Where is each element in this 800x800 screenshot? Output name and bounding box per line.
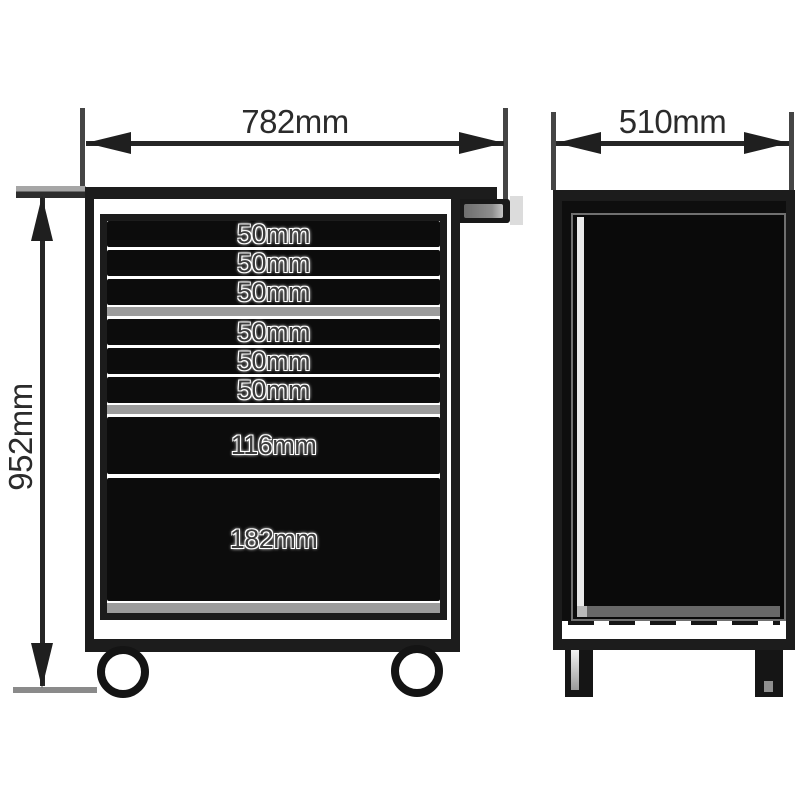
side-handle: [458, 199, 510, 223]
caster-wheel-right: [391, 645, 443, 697]
caster-wheel-left: [97, 646, 149, 698]
drawer-3: 50mm: [107, 279, 440, 305]
dim-arrow-down-icon: [31, 643, 53, 688]
dimension-line-width: [86, 141, 504, 146]
drawer-4-label: 50mm: [237, 319, 310, 346]
side-panel-corner: [577, 606, 587, 617]
drawer-6-label: 50mm: [237, 377, 310, 404]
drawer-rail: [107, 405, 440, 414]
drawer-rail: [107, 307, 440, 316]
side-leg-front: [565, 650, 593, 697]
front-view: 50mm 50mm 50mm 50mm 50mm 50mm 116mm: [85, 187, 460, 652]
side-panel-bottom-shade: [577, 606, 780, 617]
side-base-dashed-line: [568, 621, 780, 625]
dim-arrow-up-icon: [31, 196, 53, 241]
drawing-canvas: 782mm 510mm 952mm 50mm 50mm 50mm 50mm: [0, 0, 800, 800]
drawer-5: 50mm: [107, 348, 440, 374]
dimension-line-height: [40, 198, 45, 686]
drawer-5-label: 50mm: [237, 348, 310, 375]
drawer-8-label: 182mm: [230, 526, 318, 553]
height-dimension-label: 952mm: [2, 383, 40, 491]
drawer-rail: [107, 603, 440, 613]
drawer-1: 50mm: [107, 221, 440, 247]
drawer-4: 50mm: [107, 319, 440, 345]
drawer-2-label: 50mm: [237, 250, 310, 277]
side-handle-grip: [464, 204, 503, 218]
drawer-compartment: 50mm 50mm 50mm 50mm 50mm 50mm 116mm: [100, 214, 447, 620]
handle-highlight: [510, 196, 523, 225]
drawer-7: 116mm: [107, 417, 440, 474]
extension-line-width-left: [80, 108, 85, 190]
drawer-1-label: 50mm: [237, 221, 310, 248]
side-leg-rear: [755, 650, 783, 697]
side-panel: [571, 213, 786, 621]
drawer-6: 50mm: [107, 377, 440, 403]
drawer-8: 182mm: [107, 478, 440, 601]
extension-line-depth-right: [789, 112, 794, 190]
depth-dimension-label: 510mm: [556, 103, 789, 141]
drawer-3-label: 50mm: [237, 279, 310, 306]
side-panel-highlight: [577, 217, 584, 610]
side-leg-highlight: [571, 650, 579, 690]
width-dimension-label: 782mm: [86, 103, 504, 141]
side-leg-notch: [764, 681, 773, 692]
drawer-2: 50mm: [107, 250, 440, 276]
extension-tick-height-bottom: [13, 687, 97, 693]
side-base-band: [562, 621, 786, 639]
drawer-7-label: 116mm: [231, 432, 317, 459]
side-view: [553, 190, 795, 650]
